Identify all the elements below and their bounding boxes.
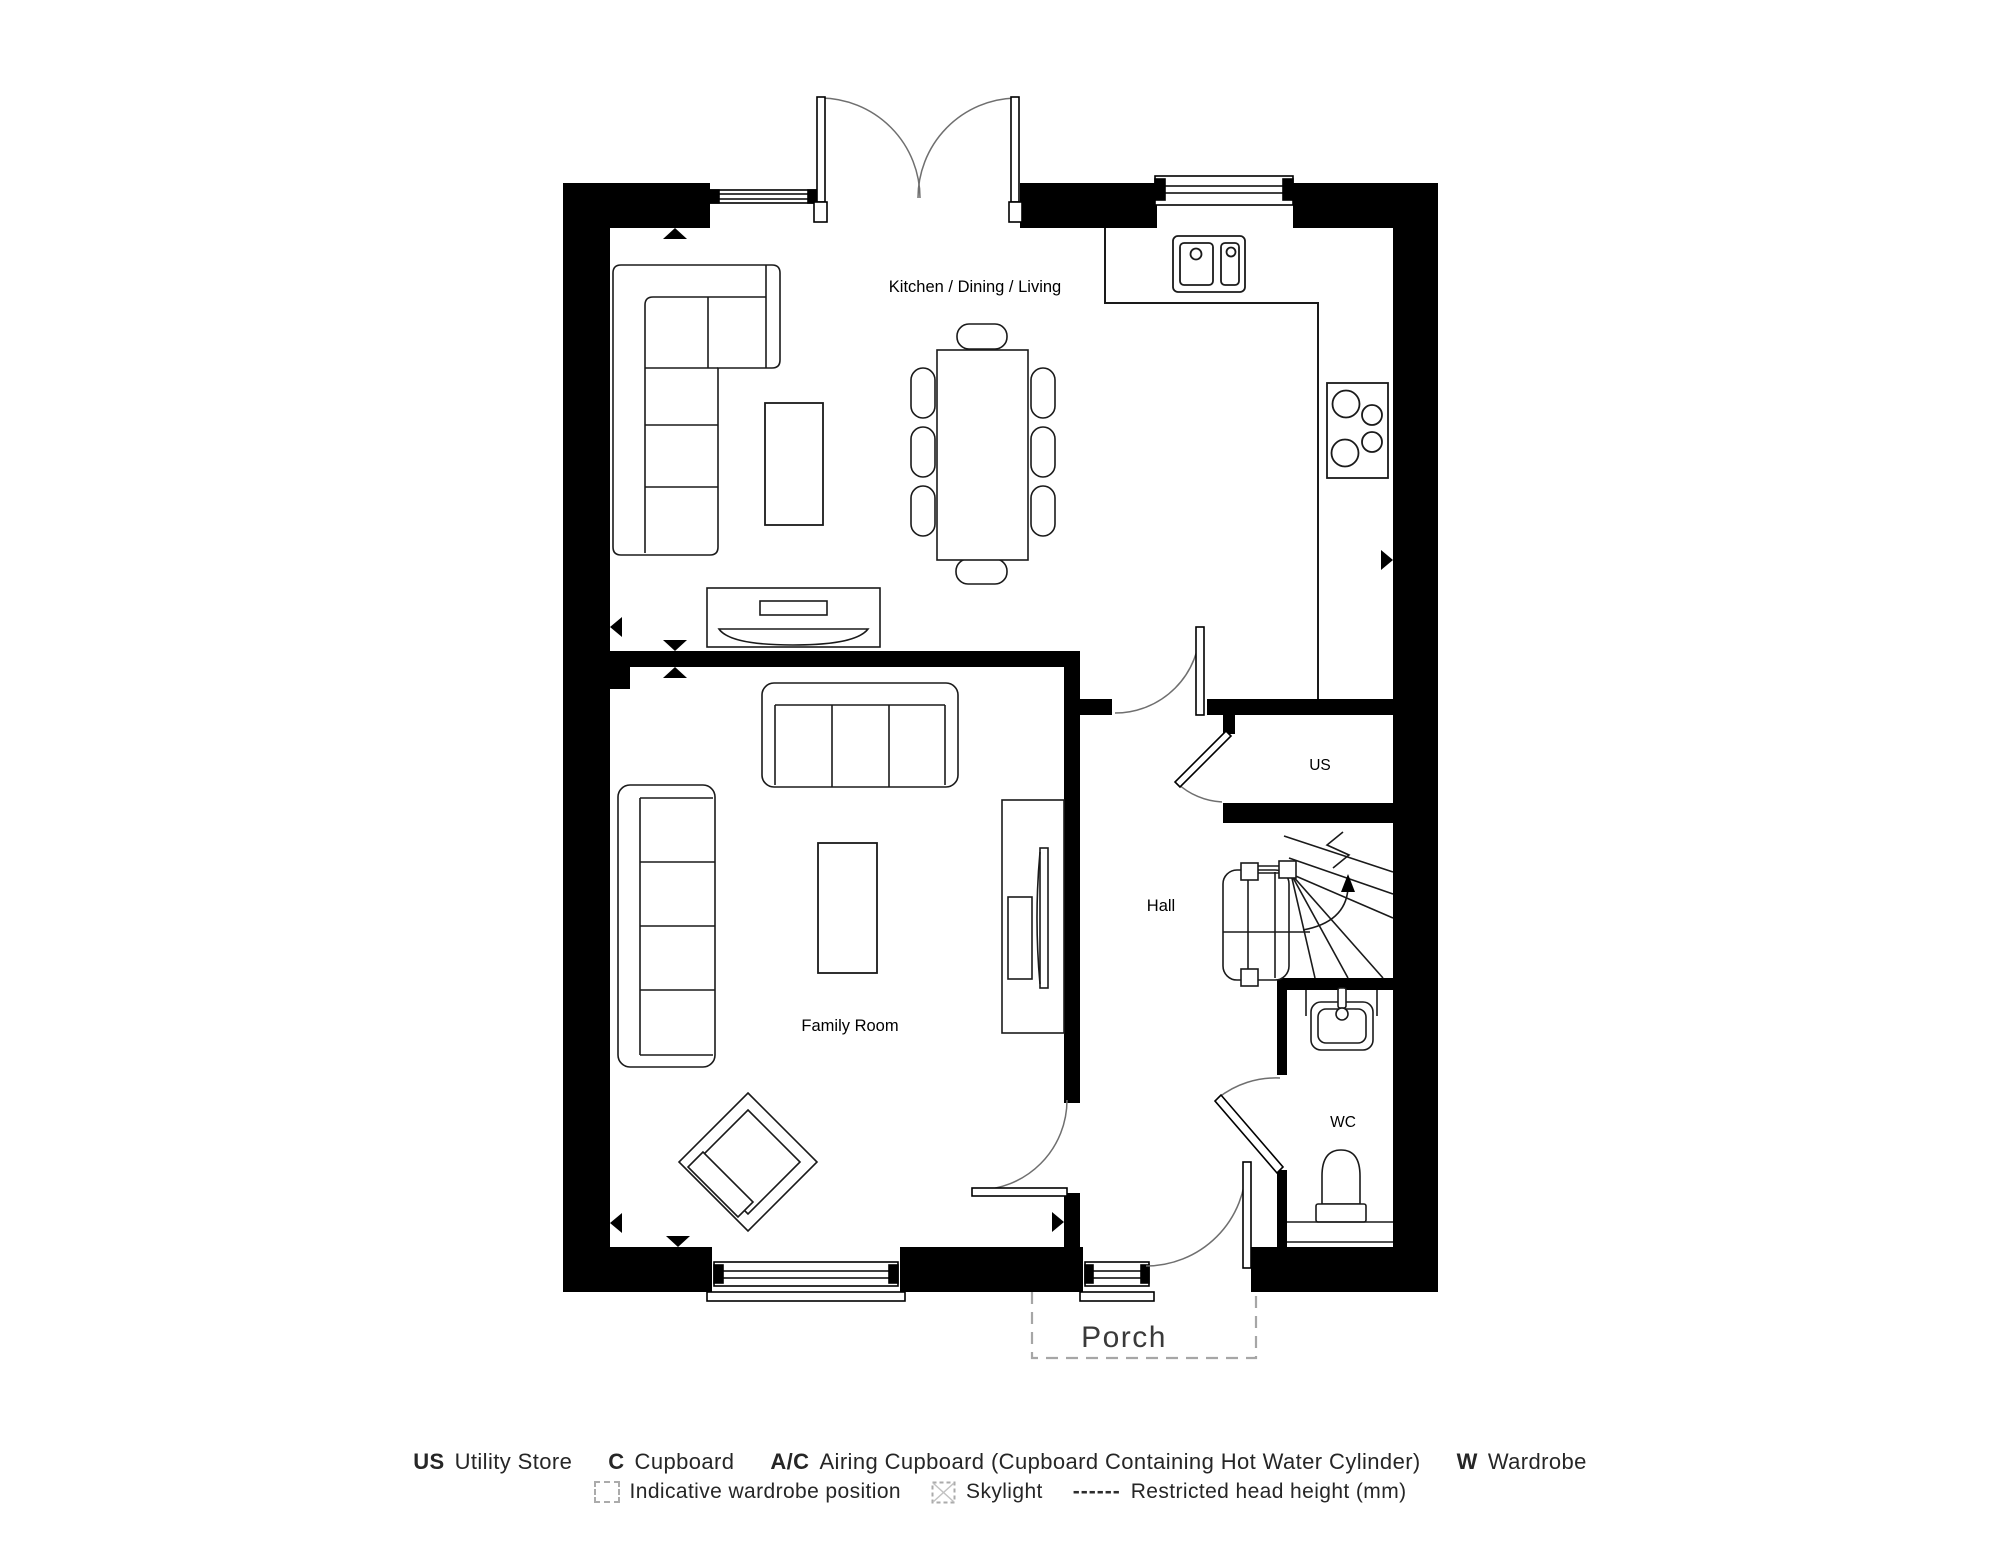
door-utility-store [1175,731,1231,802]
room-label-porch: Porch [1081,1321,1167,1354]
legend-item-cupboard: C Cupboard [608,1449,734,1475]
skylight-icon [931,1481,956,1504]
legend-label: Skylight [966,1480,1043,1504]
window-family-bottom [707,1262,905,1301]
room-label-kitchen-dining-living: Kitchen / Dining / Living [889,278,1061,296]
legend-abbreviations-row: US Utility Store C Cupboard A/C Airing C… [413,1449,1587,1475]
room-label-family-room: Family Room [801,1017,898,1035]
door-wc [1215,1078,1283,1173]
staircase [1223,832,1393,986]
stair-newel [1241,863,1258,880]
legend-label: Airing Cupboard (Cupboard Containing Hot… [819,1449,1420,1475]
restricted-head-height-dashes: ------ [1073,1480,1121,1504]
sofa-family-top [762,683,958,787]
dining-chair [911,427,935,477]
room-label-utility-store: US [1309,757,1331,774]
wardrobe-position-icon [594,1481,620,1503]
french-door-leaf-left [817,97,825,202]
legend-item-wardrobe-position: Indicative wardrobe position [594,1480,902,1504]
floorplan-page: Kitchen / Dining / Living Family Room Ha… [0,0,2000,1561]
kitchen-counter [1105,228,1318,699]
legend-item-wardrobe: W Wardrobe [1457,1449,1587,1475]
legend-label: Indicative wardrobe position [630,1480,902,1504]
legend-abbr: A/C [770,1449,809,1475]
window-kitchen-top [1155,176,1293,205]
legend-abbr: W [1457,1449,1478,1475]
window-living-top [710,190,817,203]
stair-break-line [1327,832,1349,868]
door-front [1146,1162,1251,1268]
legend-abbr: C [608,1449,624,1475]
floorplan-drawing: Kitchen / Dining / Living Family Room Ha… [0,0,2000,1561]
legend-symbols-row: Indicative wardrobe position Skylight --… [594,1480,1407,1504]
dining-bench-bottom [956,559,1007,584]
dining-chair [1031,427,1055,477]
corner-sofa [613,265,780,555]
console-table [707,588,880,647]
armchair [679,1093,817,1231]
dining-chair [911,368,935,418]
french-door-leaf-right [1011,97,1019,202]
legend-item-restricted-head-height: ------ Restricted head height (mm) [1073,1480,1407,1504]
dining-chair [1031,368,1055,418]
french-doors [814,97,1022,222]
legend: US Utility Store C Cupboard A/C Airing C… [0,1449,2000,1504]
legend-abbr: US [413,1449,444,1475]
door-family-hall [972,1100,1067,1196]
room-label-wc: WC [1330,1114,1356,1131]
dining-chair [1031,486,1055,536]
tv-unit [1002,800,1064,1033]
kitchen-hob [1327,383,1388,478]
coffee-table-family [818,843,877,973]
legend-item-utility-store: US Utility Store [413,1449,572,1475]
legend-item-skylight: Skylight [931,1480,1043,1504]
legend-label: Wardrobe [1488,1449,1587,1475]
room-label-hall: Hall [1147,897,1175,915]
dining-chair [911,486,935,536]
legend-label: Cupboard [635,1449,735,1475]
sofa-family-left [618,785,715,1067]
wc-toilet [1287,1150,1393,1242]
dining-table [937,350,1028,560]
coffee-table-living [765,403,823,525]
stair-newel [1241,969,1258,986]
door-kitchen-hall [1115,627,1204,715]
dining-table-set [911,324,1055,584]
kitchen-sink [1173,236,1245,292]
legend-label: Restricted head height (mm) [1131,1480,1407,1504]
wc-sink [1306,988,1377,1050]
dining-bench-top [957,324,1007,349]
window-porch-sidelight [1080,1262,1154,1301]
legend-item-airing-cupboard: A/C Airing Cupboard (Cupboard Containing… [770,1449,1420,1475]
legend-label: Utility Store [455,1449,573,1475]
stair-newel [1279,861,1296,878]
